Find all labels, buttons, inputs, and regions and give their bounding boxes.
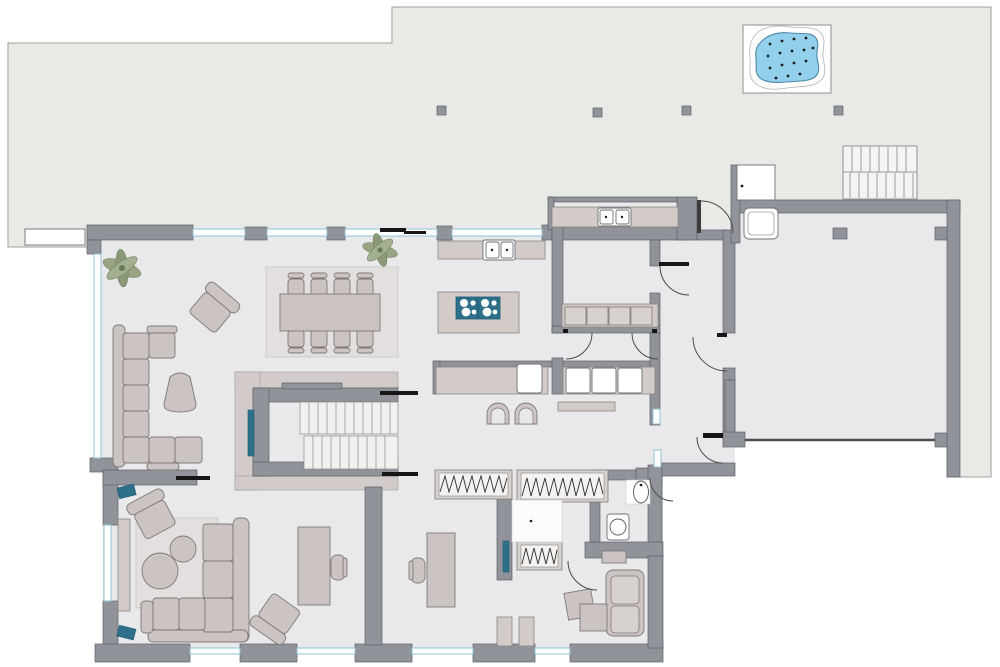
dressing-floor bbox=[512, 500, 562, 542]
wall-bench bbox=[519, 617, 534, 646]
stair-closet-door bbox=[248, 410, 254, 456]
desk bbox=[298, 527, 330, 605]
small-sofa bbox=[606, 570, 644, 636]
wardrobe bbox=[435, 470, 512, 499]
wall-bench bbox=[497, 617, 512, 646]
dressing-door bbox=[503, 541, 509, 572]
main-living-floor bbox=[95, 225, 735, 470]
floor-plan-page bbox=[0, 0, 1000, 667]
window bbox=[297, 648, 355, 654]
garage-wall-box bbox=[833, 228, 847, 239]
window bbox=[535, 648, 570, 654]
desk-chair bbox=[331, 555, 347, 580]
wardrobe bbox=[517, 541, 562, 570]
desk bbox=[427, 533, 455, 607]
stair-rail-mark bbox=[380, 391, 418, 395]
utility-box bbox=[737, 165, 775, 200]
utility-appliances bbox=[563, 367, 655, 394]
doormat bbox=[25, 229, 85, 245]
hall-bench bbox=[558, 402, 615, 411]
stair-rail-mark bbox=[382, 472, 418, 476]
scullery-sink bbox=[598, 208, 631, 226]
window bbox=[190, 648, 240, 654]
sliding-door-mark bbox=[176, 476, 210, 480]
washbasin bbox=[610, 519, 626, 535]
hot-tub bbox=[743, 25, 831, 93]
desk-chair bbox=[409, 558, 425, 583]
sliding-door-mark bbox=[404, 231, 426, 234]
counter-sink bbox=[517, 364, 542, 393]
wardrobe bbox=[517, 470, 608, 502]
window bbox=[193, 229, 245, 236]
coffee-table bbox=[170, 536, 196, 562]
stair-flight-upper bbox=[300, 402, 398, 434]
staircase bbox=[235, 372, 398, 490]
pantry-door-leaf bbox=[659, 262, 689, 266]
entry-door-leaf bbox=[697, 200, 701, 233]
wall-shelf bbox=[602, 551, 626, 563]
glass-sidelight bbox=[653, 409, 660, 424]
stair-flight-lower bbox=[304, 436, 398, 469]
window bbox=[104, 525, 111, 601]
kitchen-island bbox=[438, 292, 519, 333]
window bbox=[267, 229, 327, 236]
window bbox=[452, 229, 542, 236]
kitchen-sink bbox=[483, 240, 515, 260]
dining-table bbox=[280, 294, 380, 331]
floor-plan-drawing bbox=[0, 0, 1000, 667]
pantry-cabinets bbox=[562, 304, 658, 327]
dining-area bbox=[266, 267, 398, 357]
sliding-door-mark bbox=[380, 228, 406, 232]
side-table bbox=[580, 604, 607, 631]
glass-sidelight bbox=[654, 450, 661, 467]
window bbox=[412, 648, 473, 654]
coffee-table bbox=[142, 553, 178, 589]
sideboard bbox=[118, 519, 130, 611]
window-west-glazing bbox=[94, 254, 101, 458]
firewood-rack bbox=[843, 146, 917, 199]
garage-floor bbox=[735, 210, 950, 441]
